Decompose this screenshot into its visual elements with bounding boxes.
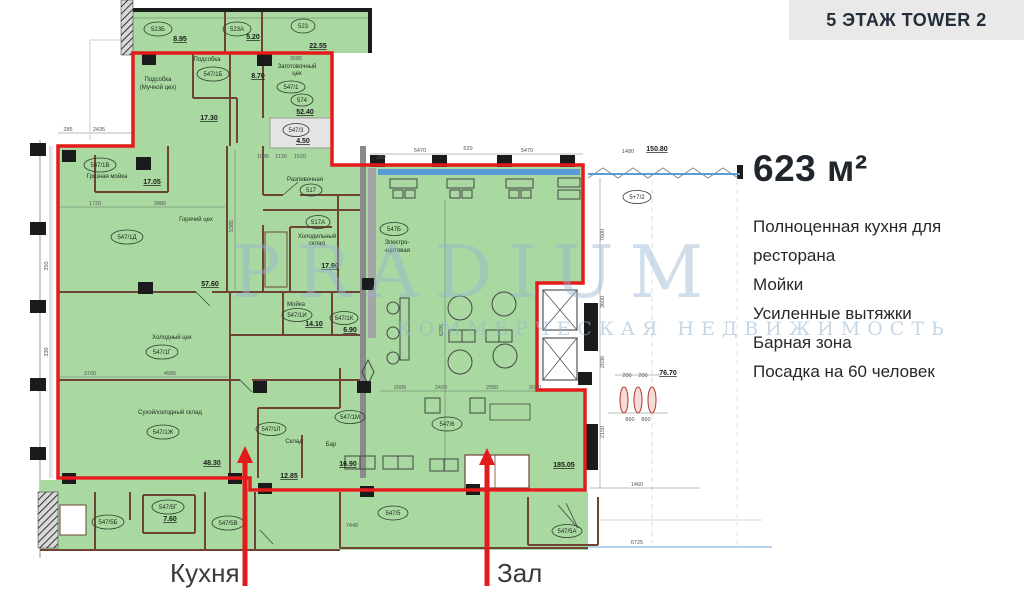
dimension-label: 285 [63,127,72,133]
area-value: 17.30 [200,115,218,122]
dimension-label: 200 [622,373,631,379]
dimension-label: 6295 [439,324,445,336]
room-name: Склад [285,439,303,445]
area-value: 6.90 [343,327,357,334]
room-label: 523Б [151,27,165,33]
dimension-label: 330 [44,347,50,356]
room-name: Электро- [384,240,409,246]
room-name: Холодный цех [152,334,192,341]
room-label: 523А [230,27,244,33]
dimension-label: 3600 [600,296,606,308]
dimension-label: 3685 [290,56,302,62]
area-value: 14.10 [305,321,323,328]
dimension-label: 7600 [600,229,606,241]
room-label: 547/5Г [159,505,178,511]
dimension-label: 2150 [600,426,606,438]
dimension-label: 350 [44,261,50,270]
room-label: 547/1К [335,316,354,322]
room-name: Разливочная [287,177,323,183]
header-box: 5 ЭТАЖ TOWER 2 [789,0,1024,40]
slide: 523Б 8.95 523А 5.20 523 22.55 Подсобка 5… [0,0,1024,589]
room-label: 547/5А [557,529,576,535]
dimension-label: 2036 [600,356,606,368]
info-panel: 623 м² Полноценная кухня для ресторана М… [753,148,1011,386]
room-label: 547/6 [439,422,455,428]
room-label: 574 [297,98,308,104]
area-value: 76.70 [659,370,677,377]
feature-item: Усиленные вытяжки [753,299,1001,328]
room-label: 517 [306,188,317,194]
column-detail [620,387,656,413]
room-name: цех [292,71,302,77]
room-name: Сухой/холодный склад [138,409,202,416]
dimension-label: 2435 [93,127,105,133]
room-label: 547/1Ж [153,430,174,436]
dimension-label: 520 [463,146,472,152]
area-value: 185.05 [553,462,575,469]
room-label: 547/1Л [262,427,281,433]
dimension-label: 7448 [346,523,358,529]
area-value: 5.20 [246,34,260,41]
area-value: 12.85 [280,473,298,480]
feature-list: Полноценная кухня для ресторана Мойки Ус… [753,212,1001,386]
dimension-label: 5470 [521,148,533,154]
dimension-label: 2420 [435,385,447,391]
room-name: Грязная мойка [87,173,128,180]
feature-item: Полноценная кухня для ресторана [753,212,1001,270]
area-value: 16.90 [339,461,357,468]
room-label: 523 [298,24,309,30]
room-name: -щитовая [384,248,410,254]
dimension-label: 1045 [257,154,269,160]
area-value: 17.05 [143,179,161,186]
room-label: 547/5 [385,511,401,517]
dimension-label: 3700 [84,371,96,377]
room-label: 547/1В [90,163,109,169]
room-label: 5+7/2 [629,195,645,201]
room-name: Бар [326,442,337,448]
room-label: 547/1М [340,415,360,421]
area-value: 57.60 [201,281,219,288]
area-value: 150.80 [646,146,668,153]
dimension-label: 5385 [229,220,235,232]
room-label: 547/1И [287,313,306,319]
dimension-label: 2050 [486,385,498,391]
area-total: 623 м² [753,148,1011,190]
area-value: 22.55 [309,43,327,50]
area-value: 17.90 [321,263,339,270]
dimension-label: 1520 [294,154,306,160]
room-label: 547/1Д [117,235,136,241]
room-name: Горячий цех [179,216,213,223]
hatched-wall [121,0,133,55]
page-title: 5 ЭТАЖ TOWER 2 [826,10,987,31]
dimension-label: 4985 [164,371,176,377]
room-label: 547/5В [218,521,237,527]
area-value: 8.70 [251,73,265,80]
room-name: Заготовочный [278,63,317,70]
room-name: Подсобка [145,77,173,83]
dimension-label: 2040 [529,385,541,391]
dimension-label: 5470 [414,148,426,154]
area-value: 52.40 [296,109,314,116]
room-label: 517А [311,220,325,226]
feature-item: Барная зона [753,328,1001,357]
dimension-label: 1720 [89,201,101,207]
dimension-label: 860 [641,417,650,423]
hall-callout-label: Зал [497,558,542,589]
room-label: 547/3 [288,128,304,134]
dimension-label: 6725 [631,540,643,546]
room-name: склад [309,241,326,247]
room-name: (Мучной цех) [140,84,176,91]
dimension-label: 1480 [622,149,634,155]
room-label: 547/1Г [153,350,172,356]
feature-item: Мойки [753,270,1001,299]
room-label: 547/1Б [204,72,223,78]
room-label: 547/5Б [99,520,118,526]
dimension-label: 1460 [631,482,643,488]
dimension-label: 860 [625,417,634,423]
room-label: 547/1 [283,85,299,91]
area-value: 7.60 [163,516,177,523]
area-value: 48.30 [203,460,221,467]
dimension-label: 200 [638,373,647,379]
hatched-wall [38,492,58,548]
feature-item: Посадка на 60 человек [753,357,1001,386]
room-name: Холодильный [298,233,336,240]
dimension-label: 1130 [275,154,287,160]
room-name: Подсобка [194,57,222,63]
dimension-label: 3980 [154,201,166,207]
room-label: 547Б [387,227,401,233]
room-name: Мойка [287,301,306,308]
kitchen-callout-label: Кухня [170,558,240,589]
dimension-label: 380 [376,155,385,161]
area-value: 8.95 [173,36,187,43]
area-value: 4.50 [296,138,310,145]
dimension-label: 2005 [394,385,406,391]
